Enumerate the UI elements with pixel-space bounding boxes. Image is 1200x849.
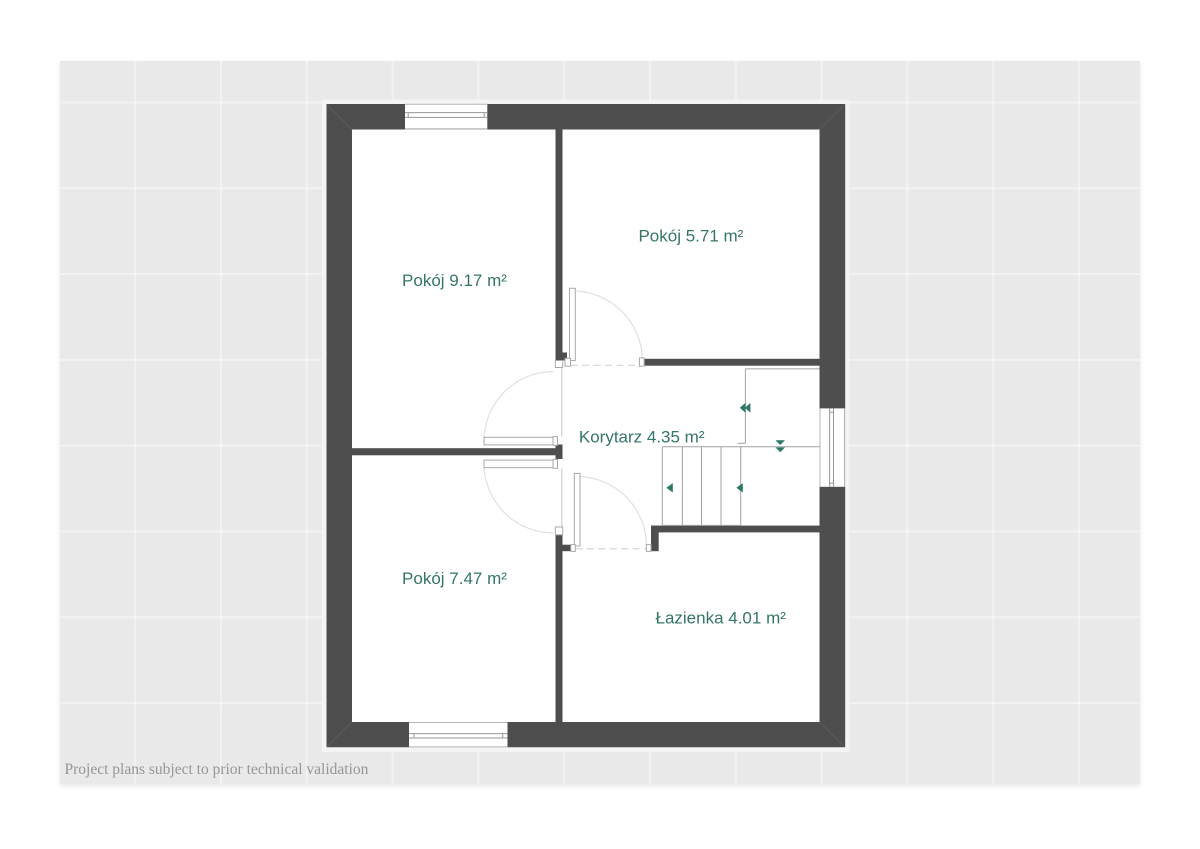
- svg-text:Korytarz 4.35 m²: Korytarz 4.35 m²: [579, 427, 705, 446]
- svg-text:Łazienka 4.01 m²: Łazienka 4.01 m²: [655, 608, 786, 627]
- svg-text:Pokój 7.47 m²: Pokój 7.47 m²: [402, 569, 507, 588]
- svg-text:Pokój 5.71 m²: Pokój 5.71 m²: [638, 227, 743, 246]
- svg-text:Pokój 9.17 m²: Pokój 9.17 m²: [402, 271, 507, 290]
